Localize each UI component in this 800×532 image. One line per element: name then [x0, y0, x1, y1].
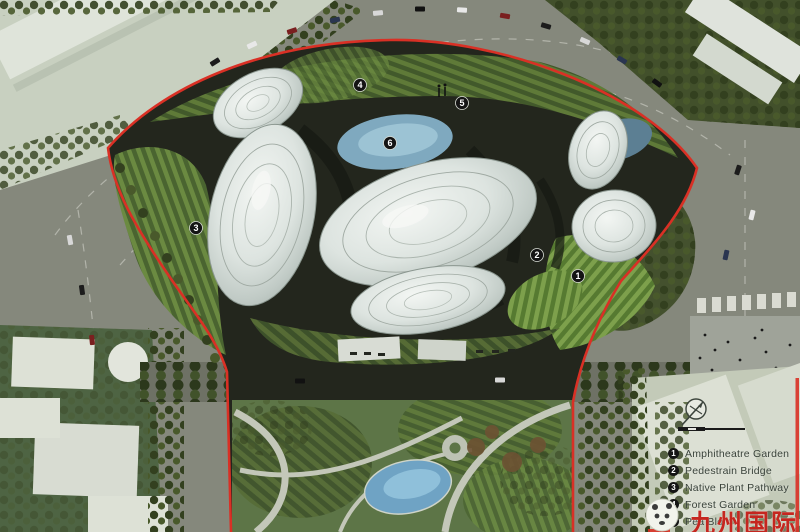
plan-marker-4: 4 [354, 79, 367, 92]
lower-park [228, 384, 590, 532]
svg-text:4: 4 [357, 80, 362, 90]
aerial-site-plan: 123456 1 Amphitheatre Garden 2 Pedestrai… [0, 0, 800, 532]
legend-item: 3 Native Plant Pathway [668, 479, 800, 496]
legend-item: 1 Amphitheatre Garden [668, 445, 800, 462]
svg-text:6: 6 [387, 138, 392, 148]
svg-text:1: 1 [575, 271, 580, 281]
svg-text:2: 2 [534, 250, 539, 260]
plan-marker-6: 6 [384, 137, 397, 150]
legend-number-badge: 2 [668, 465, 679, 476]
plan-marker-1: 1 [572, 270, 585, 283]
legend-number-badge: 1 [668, 448, 679, 459]
watermark-logo-icon [645, 498, 679, 532]
legend-item-label: Native Plant Pathway [685, 482, 789, 494]
svg-text:5: 5 [459, 98, 464, 108]
watermark-text: 九州国际 [690, 504, 798, 532]
plan-marker-3: 3 [190, 222, 203, 235]
legend-item-label: Amphitheatre Garden [685, 448, 789, 460]
legend-item-label: Pedestrain Bridge [685, 465, 772, 477]
plan-marker-2: 2 [531, 249, 544, 262]
city-block-bottom-left [0, 325, 184, 532]
scale-bar [678, 426, 750, 434]
legend-item: 2 Pedestrain Bridge [668, 462, 800, 479]
svg-text:3: 3 [193, 223, 198, 233]
legend-number-badge: 3 [668, 482, 679, 493]
plan-marker-5: 5 [456, 97, 469, 110]
